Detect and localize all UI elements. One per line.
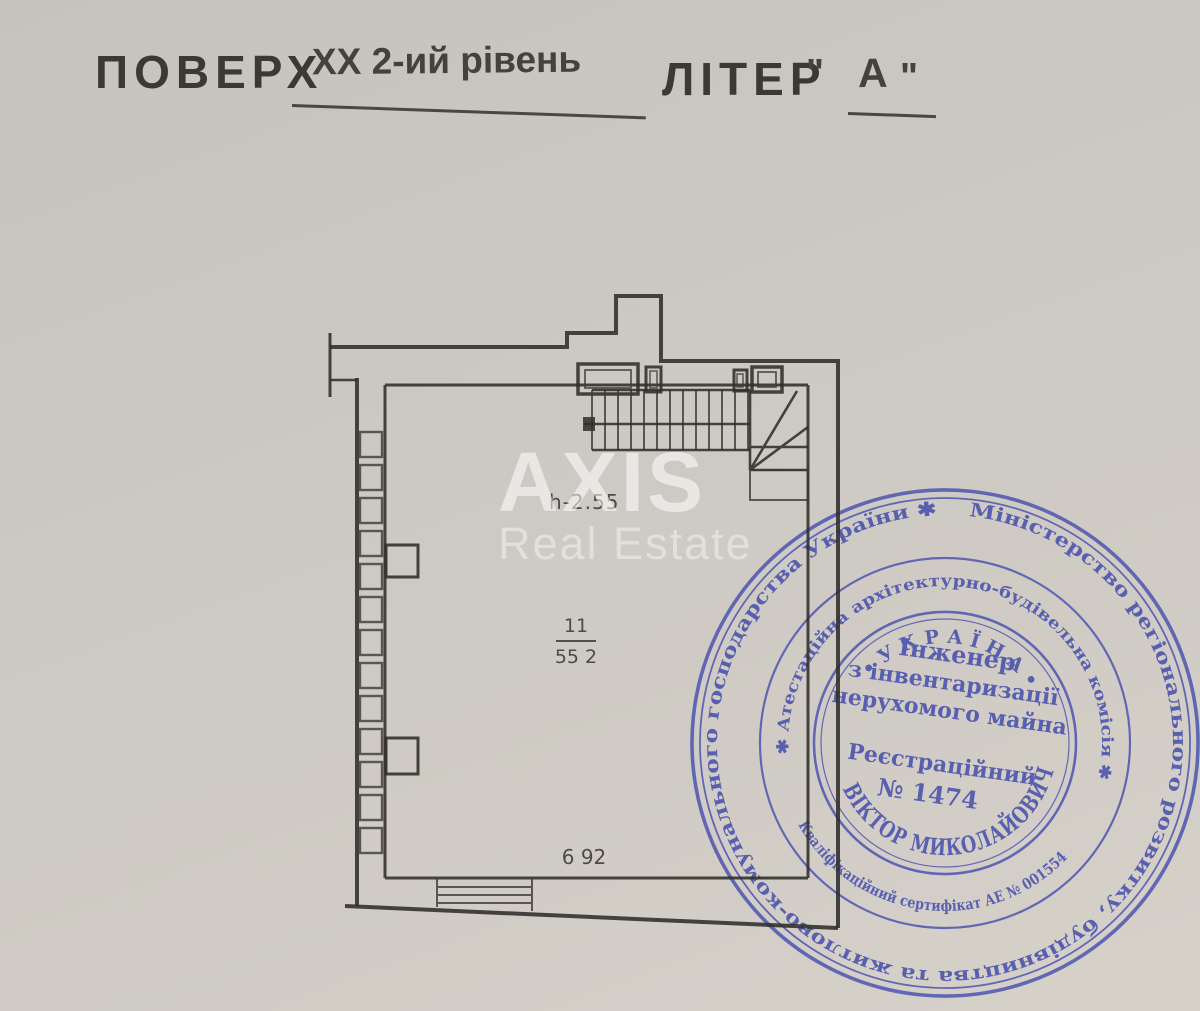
stair-winders (750, 390, 808, 470)
room-number: 11 (564, 615, 588, 637)
bottom-dimension: 6 92 (562, 845, 607, 869)
room-area: 55 2 (555, 646, 597, 668)
document-page: ПОВЕРХ XX 2-ий рівень ЛІТЕР " А " Мініст… (0, 0, 1200, 1011)
ceiling-height-note: h-2.55 (549, 490, 619, 514)
plan-labels: h-2.55 11 55 2 6 92 (549, 490, 619, 869)
staircase (583, 390, 808, 500)
window-symbol-bottom (437, 879, 532, 911)
inspector-stamp: Міністерство регіонального розвитку, буд… (667, 465, 1200, 1011)
stair-newel-post (583, 417, 595, 431)
stamp-outer-circle-1 (667, 465, 1200, 1011)
pilaster-lower (386, 738, 418, 774)
pilaster-upper (386, 545, 418, 577)
left-wall-window-stack (360, 432, 382, 853)
stamp-outer-circle-2 (676, 474, 1200, 1011)
stair-landing-box (750, 470, 808, 500)
stamp-outer-ring-text: Міністерство регіонального розвитку, буд… (676, 473, 1200, 1011)
stamp-middle-circle (742, 540, 1149, 947)
stair-treads (592, 390, 748, 450)
floor-plan-svg: Міністерство регіонального розвитку, буд… (0, 0, 1200, 1011)
